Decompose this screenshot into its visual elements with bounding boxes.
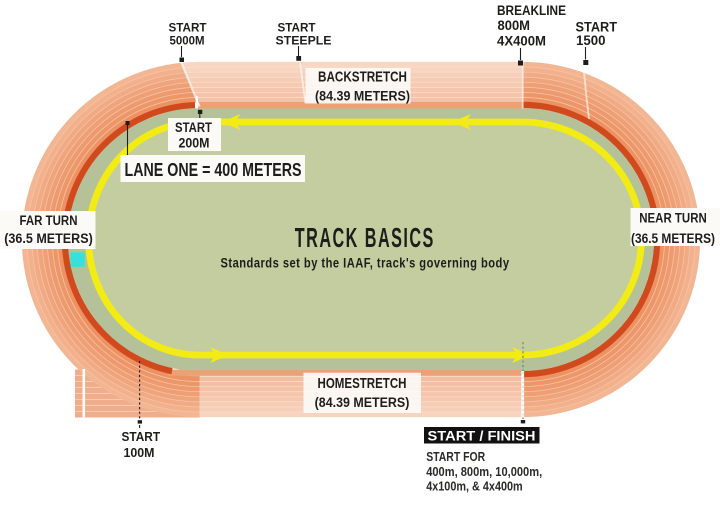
svg-text:BREAKLINE: BREAKLINE: [497, 3, 566, 18]
svg-text:(36.5 METERS): (36.5 METERS): [631, 231, 715, 246]
svg-text:(84.39 METERS): (84.39 METERS): [315, 89, 410, 104]
svg-text:(84.39 METERS): (84.39 METERS): [315, 395, 410, 410]
svg-text:5000M: 5000M: [170, 34, 205, 48]
svg-text:4X400M: 4X400M: [497, 33, 546, 48]
svg-text:800M: 800M: [498, 18, 531, 33]
svg-text:1500: 1500: [576, 33, 606, 48]
svg-text:START: START: [278, 21, 317, 35]
svg-text:200M: 200M: [179, 135, 210, 150]
svg-text:400m, 800m, 10,000m,: 400m, 800m, 10,000m,: [426, 465, 542, 479]
svg-text:TRACK BASICS: TRACK BASICS: [295, 222, 435, 253]
svg-text:(36.5 METERS): (36.5 METERS): [4, 231, 93, 246]
svg-text:START FOR: START FOR: [426, 450, 485, 464]
svg-text:LANE ONE = 400 METERS: LANE ONE = 400 METERS: [125, 159, 302, 180]
svg-text:START: START: [169, 21, 208, 35]
svg-text:START: START: [122, 429, 161, 444]
svg-text:START: START: [175, 120, 213, 135]
svg-text:100M: 100M: [124, 445, 155, 460]
svg-text:BACKSTRETCH: BACKSTRETCH: [318, 69, 407, 86]
svg-text:Standards set by the IAAF, tra: Standards set by the IAAF, track's gover…: [221, 255, 510, 271]
svg-text:FAR TURN: FAR TURN: [20, 213, 78, 228]
svg-text:NEAR TURN: NEAR TURN: [639, 211, 707, 226]
svg-text:START / FINISH: START / FINISH: [428, 428, 536, 443]
svg-text:STEEPLE: STEEPLE: [276, 34, 332, 48]
svg-text:4x100m, & 4x400m: 4x100m, & 4x400m: [426, 479, 523, 493]
svg-text:HOMESTRETCH: HOMESTRETCH: [318, 375, 407, 392]
